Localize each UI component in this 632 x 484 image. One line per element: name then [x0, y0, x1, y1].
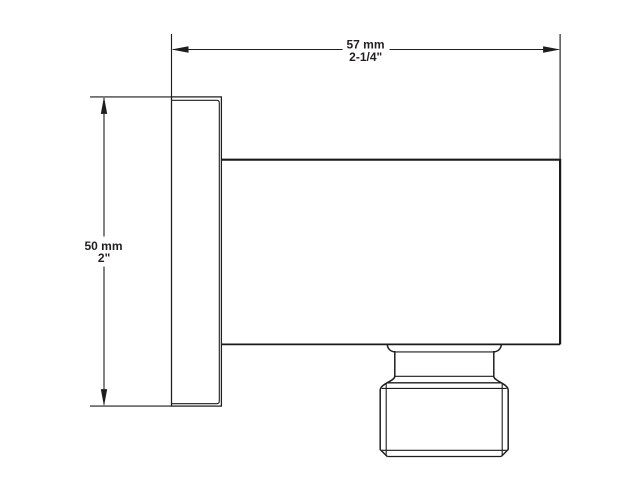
svg-text:2": 2" [98, 251, 110, 265]
svg-text:2-1/4": 2-1/4" [349, 50, 382, 64]
